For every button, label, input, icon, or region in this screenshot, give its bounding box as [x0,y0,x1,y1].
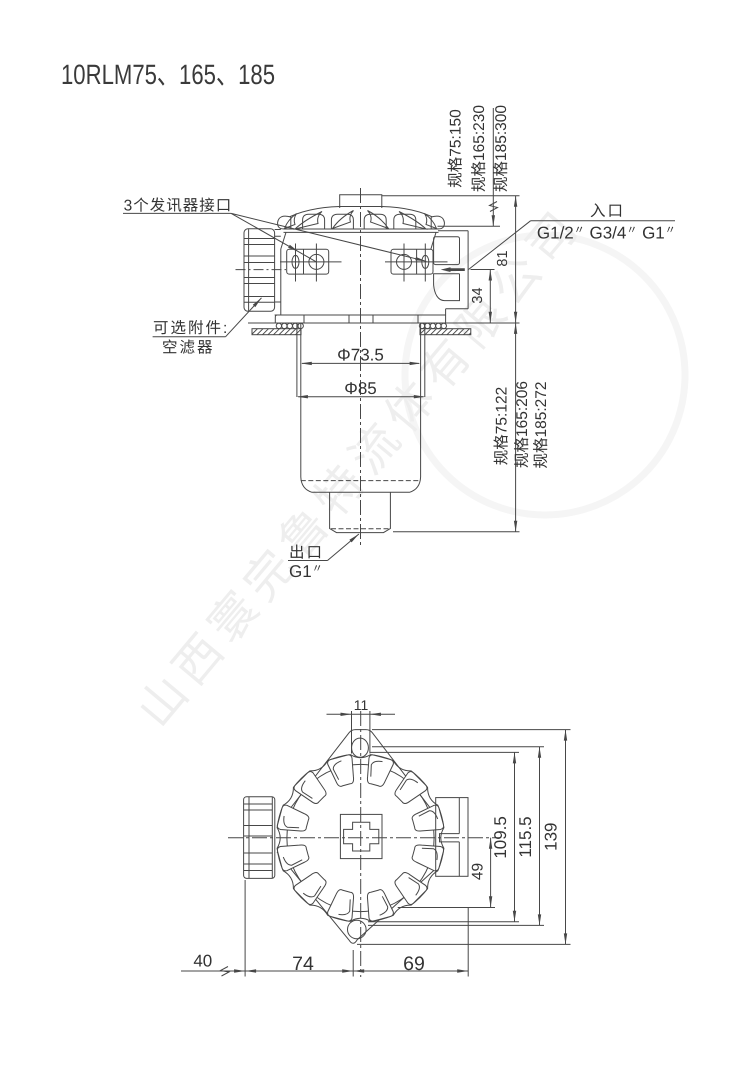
svg-text:11: 11 [354,697,369,713]
svg-text:规格165:206: 规格165:206 [513,381,531,468]
svg-text:规格75:150: 规格75:150 [447,109,465,188]
svg-text:入口: 入口 [590,203,625,220]
svg-text:规格185:272: 规格185:272 [532,381,550,468]
svg-text:109.5: 109.5 [491,816,510,859]
svg-text:69: 69 [403,953,425,975]
svg-text:G1/2〃 G3/4〃 G1〃: G1/2〃 G3/4〃 G1〃 [537,224,676,243]
svg-text:空滤器: 空滤器 [162,339,215,357]
svg-text:49: 49 [470,863,487,880]
svg-text:Φ73.5: Φ73.5 [337,346,384,365]
svg-text:139: 139 [542,823,561,851]
svg-text:规格75:122: 规格75:122 [493,387,511,465]
svg-text:115.5: 115.5 [516,816,535,857]
svg-text:出口: 出口 [289,545,324,562]
svg-text:可选附件:: 可选附件: [153,320,229,337]
svg-text:34: 34 [470,287,486,303]
svg-text:规格185:300: 规格185:300 [492,105,510,192]
svg-text:74: 74 [292,953,314,975]
svg-text:10RLM75、165、185: 10RLM75、165、185 [61,59,275,90]
svg-text:3个发讯器接口: 3个发讯器接口 [124,196,233,214]
svg-text:81: 81 [495,250,511,266]
svg-text:40: 40 [193,952,212,971]
svg-text:Φ85: Φ85 [344,379,376,398]
svg-text:规格165:230: 规格165:230 [470,105,488,192]
